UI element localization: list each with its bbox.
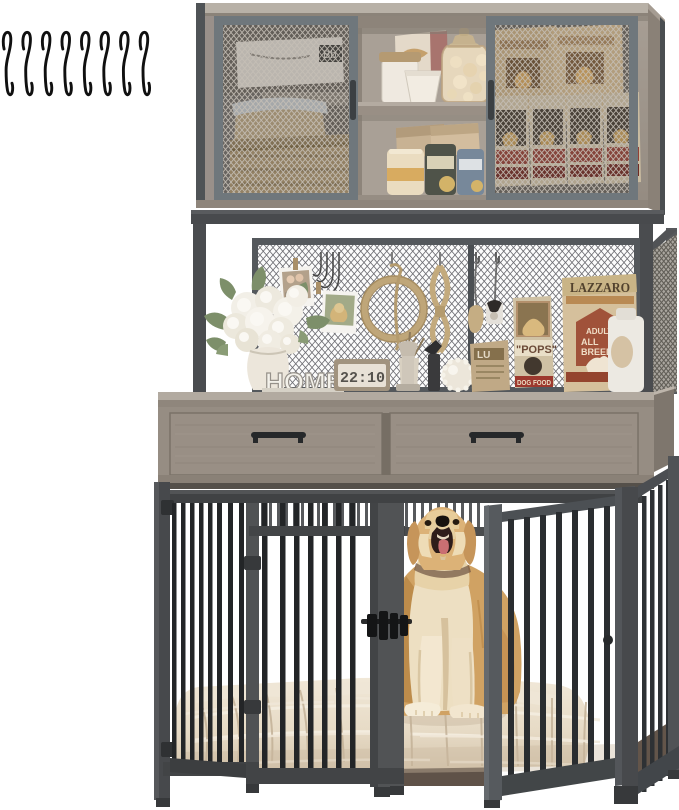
svg-text:22:10: 22:10 xyxy=(340,370,385,387)
svg-text:LAZZARO: LAZZARO xyxy=(570,281,630,296)
svg-text:ALL: ALL xyxy=(581,337,599,347)
svg-text:LU: LU xyxy=(477,350,490,361)
svg-text:"POPS": "POPS" xyxy=(516,344,557,356)
svg-text:DOG FOOD: DOG FOOD xyxy=(517,378,551,387)
